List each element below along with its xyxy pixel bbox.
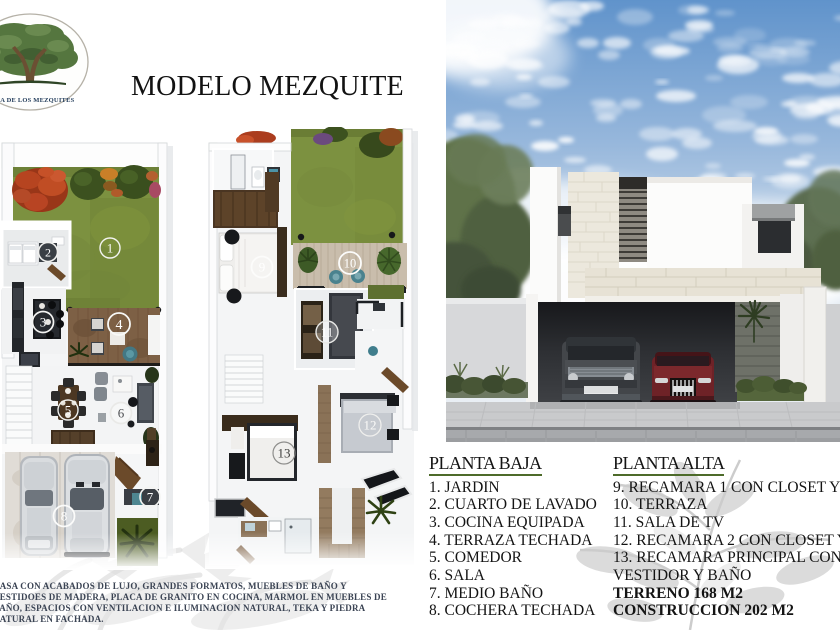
svg-text:NADA DE LOS MEZQUITES: NADA DE LOS MEZQUITES — [0, 97, 75, 104]
svg-text:7: 7 — [147, 490, 154, 505]
svg-text:8: 8 — [61, 509, 68, 524]
svg-text:4: 4 — [116, 318, 123, 333]
svg-text:1: 1 — [107, 241, 114, 256]
svg-text:2: 2 — [45, 246, 51, 260]
svg-text:11: 11 — [321, 325, 334, 340]
svg-text:6: 6 — [118, 406, 125, 421]
svg-text:3: 3 — [40, 315, 47, 330]
svg-text:10: 10 — [344, 257, 357, 271]
svg-text:12: 12 — [364, 418, 377, 433]
svg-text:13: 13 — [278, 446, 291, 461]
svg-text:9: 9 — [259, 260, 266, 275]
svg-text:5: 5 — [65, 403, 72, 418]
